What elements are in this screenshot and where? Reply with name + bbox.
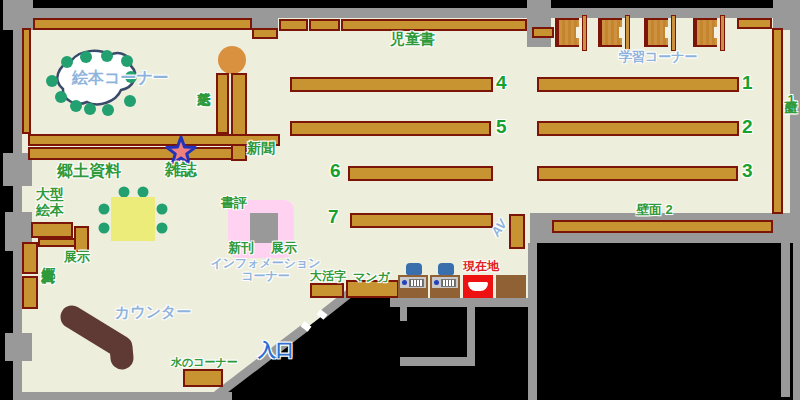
bookshelf-local-materials-2 xyxy=(22,276,38,309)
carrel-panel xyxy=(671,15,676,51)
bookshelf-top-right xyxy=(737,18,772,29)
bookshelf-under-pillar xyxy=(252,28,278,39)
label-display-left: 展示 xyxy=(64,250,90,265)
bookshelf-3 xyxy=(537,166,738,181)
power-dot xyxy=(434,280,439,285)
label-wall-2: 壁面 2 xyxy=(636,203,673,218)
wall-right-lower-a xyxy=(781,233,790,397)
study-carrel xyxy=(598,17,630,49)
bookshelf-large-picture-books-2 xyxy=(38,238,76,247)
bookshelf-kamishibai-2 xyxy=(231,73,247,161)
chair-dot xyxy=(102,104,114,116)
bookshelf-2 xyxy=(537,121,739,136)
label-picture-book-corner: 絵本コーナー xyxy=(72,69,169,87)
label-wall-1: 壁面1 xyxy=(783,90,798,108)
wall-vertical-mid xyxy=(528,243,537,400)
bookshelf-top-a xyxy=(33,18,252,30)
label-large-print: 大活字 xyxy=(310,270,346,283)
carrel-panel xyxy=(582,15,587,51)
wall-pillar-top-2 xyxy=(527,0,551,47)
chair-dot xyxy=(61,56,73,68)
wall-right-lower-b xyxy=(793,233,800,400)
label-entrance: 入口 xyxy=(258,340,294,360)
keyboard xyxy=(409,279,424,287)
shelf-number-7: 7 xyxy=(328,206,339,227)
shelf-number-3: 3 xyxy=(742,160,753,181)
current-location-marker xyxy=(463,275,493,298)
bookshelf-study-left xyxy=(532,27,554,38)
entrance-gap-post-2 xyxy=(304,324,308,329)
chair-dot xyxy=(157,223,168,234)
catalog-station xyxy=(430,275,460,298)
bookshelf-1 xyxy=(537,77,739,92)
label-children-books: 児童書 xyxy=(390,31,435,48)
display-stand xyxy=(250,213,278,243)
bookshelf-row-lower xyxy=(28,147,233,160)
bookshelf-5 xyxy=(290,121,491,136)
label-magazines: 雑誌 xyxy=(165,161,197,179)
chair-dot xyxy=(138,187,149,198)
bookshelf-wall-2 xyxy=(552,220,773,233)
station-panel xyxy=(432,277,458,288)
chair-dot xyxy=(80,51,92,63)
carrel-panel xyxy=(720,15,725,51)
shelf-number-4: 4 xyxy=(496,72,507,93)
study-carrel xyxy=(693,17,725,49)
shelf-number-2: 2 xyxy=(742,116,753,137)
reading-table xyxy=(111,197,155,241)
bookshelf-wall-1 xyxy=(772,28,783,214)
wall-bottom xyxy=(13,392,232,400)
station-panel xyxy=(400,277,426,288)
chair-dot xyxy=(119,187,130,198)
label-water-corner: 水のコーナー xyxy=(171,356,238,368)
bookshelf-room-left xyxy=(22,28,31,134)
bookshelf-water-corner xyxy=(183,369,223,387)
chair-dot xyxy=(121,55,133,67)
bookshelf-av xyxy=(509,214,525,249)
shelf-number-1: 1 xyxy=(742,72,753,93)
label-manga: マンガ xyxy=(353,271,390,284)
shelf-number-6: 6 xyxy=(330,160,341,181)
bookshelf-local-materials-1 xyxy=(22,242,38,274)
chair-dot xyxy=(99,204,110,215)
wall-top xyxy=(3,8,800,18)
bookshelf-large-picture-books xyxy=(31,222,73,238)
wall-backroom-a xyxy=(400,305,407,321)
label-current-location: 現在地 xyxy=(463,260,499,273)
label-book-review: 書評 xyxy=(221,196,247,211)
bookshelf-kamishibai-1 xyxy=(216,73,229,134)
chair-dot xyxy=(55,91,67,103)
catalog-station xyxy=(398,275,428,298)
shelf-number-5: 5 xyxy=(496,116,507,137)
chair-dot xyxy=(157,204,168,215)
bookshelf-7 xyxy=(350,213,493,228)
label-newspaper: 新聞 xyxy=(247,141,275,157)
station-chair xyxy=(406,263,422,275)
wall-pillar-left-3 xyxy=(5,333,32,361)
study-carrel xyxy=(644,17,676,49)
station-chair xyxy=(438,263,454,275)
bookshelf-top-c xyxy=(309,19,340,31)
round-table xyxy=(218,46,246,74)
you-are-here-icon xyxy=(468,282,488,291)
library-floor-map: 児童書 学習コーナー 壁面1 壁面 2 絵本コーナー 紙芝居 新聞 雑誌 郷土資… xyxy=(0,0,800,400)
wall-corner-top-left xyxy=(3,0,33,30)
wall-backroom-c xyxy=(467,302,475,366)
label-information-corner: インフォメーション コーナー xyxy=(208,257,323,284)
label-local-materials-top: 郷土資料 xyxy=(57,162,121,180)
keyboard xyxy=(441,279,456,287)
chair-dot xyxy=(101,50,113,62)
wall-pillar-top-1 xyxy=(250,8,278,28)
entrance-gap-post-1 xyxy=(320,312,324,317)
label-display-center: 展示 xyxy=(271,241,297,256)
power-dot xyxy=(402,280,407,285)
label-local-materials-left: 郷土資料 xyxy=(40,256,56,260)
bookshelf-large-print xyxy=(310,283,344,298)
wall-backroom-b xyxy=(400,357,474,366)
wall-right xyxy=(790,0,800,233)
label-large-picture-books: 大型 絵本 xyxy=(36,187,64,218)
chair-dot xyxy=(70,100,82,112)
bookshelf-row-upper xyxy=(28,134,280,146)
bookshelf-6 xyxy=(348,166,493,181)
wall-below-stations xyxy=(390,298,537,307)
label-new-arrivals: 新刊 xyxy=(228,241,254,256)
carrel-panel xyxy=(625,15,630,51)
label-counter: カウンター xyxy=(115,304,191,321)
chair-dot xyxy=(99,223,110,234)
bookshelf-4 xyxy=(290,77,493,92)
label-kamishibai: 紙芝居 xyxy=(196,81,211,84)
study-carrel xyxy=(555,17,587,49)
side-cabinet xyxy=(496,275,526,298)
bookshelf-top-b xyxy=(279,19,308,31)
chair-dot xyxy=(46,75,58,87)
label-study-corner: 学習コーナー xyxy=(619,50,698,65)
chair-dot xyxy=(124,95,136,107)
chair-dot xyxy=(84,103,96,115)
